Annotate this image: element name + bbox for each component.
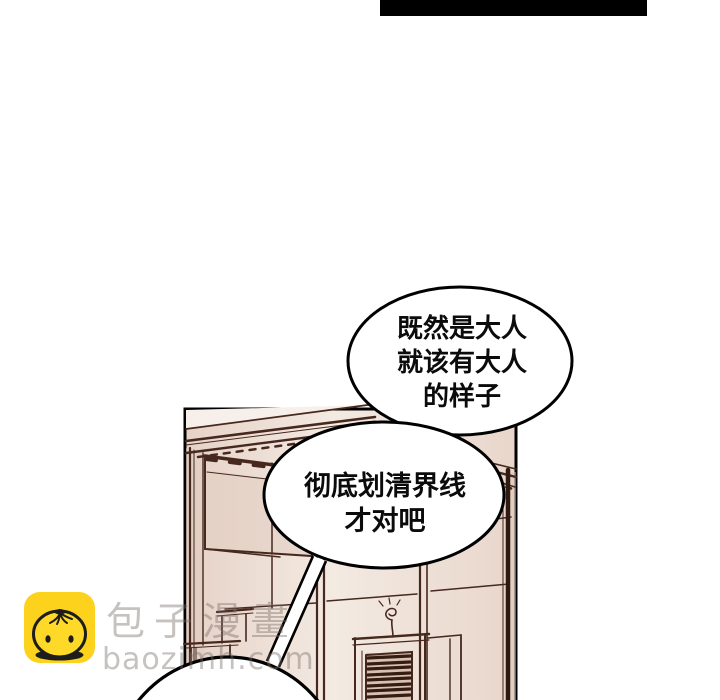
speech-bubble-1-text: 既然是大人 就该有大人 的样子 — [340, 312, 584, 414]
bubble-line: 的样子 — [340, 380, 584, 414]
bubble-line: 既然是大人 — [340, 312, 584, 346]
top-divider-bar — [380, 0, 647, 16]
watermark-site-url: baozimh.com — [102, 642, 315, 677]
baozi-bun-icon — [24, 592, 95, 663]
bubble-line: 才对吧 — [262, 504, 508, 539]
speech-bubble-2-text: 彻底划清界线 才对吧 — [262, 469, 508, 539]
watermark-site-name: 包子漫畫 — [106, 591, 298, 647]
bubble-line: 就该有大人 — [340, 346, 584, 380]
bubble-line: 彻底划清界线 — [262, 469, 508, 504]
